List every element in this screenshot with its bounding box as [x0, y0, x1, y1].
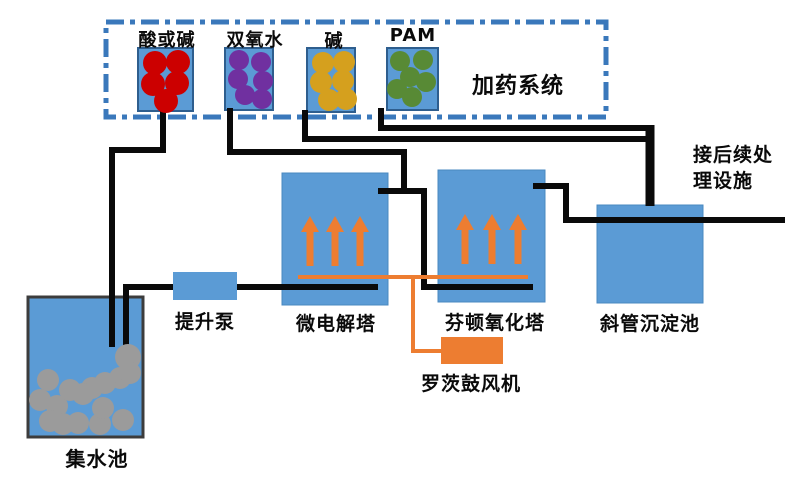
label-acid-or-alkali: 酸或碱 [139, 26, 196, 52]
label-dosing-system: 加药系统 [472, 68, 564, 100]
label-roots-blower: 罗茨鼓风机 [421, 369, 521, 396]
process-tanks [28, 170, 703, 437]
lift-pump-body [173, 272, 237, 300]
label-micro-electrolysis-tower: 微电解塔 [296, 309, 376, 336]
label-alkali: 碱 [325, 27, 344, 53]
diagram-canvas [0, 0, 800, 482]
label-pam: PAM [390, 25, 436, 46]
label-inclined-tube-settler: 斜管沉淀池 [600, 309, 700, 336]
note-to-subsequent-treatment: 接后续处理设施 [693, 143, 779, 194]
label-hydrogen-peroxide: 双氧水 [227, 26, 284, 52]
label-lift-pump: 提升泵 [175, 307, 235, 334]
label-fenton-oxidation-tower: 芬顿氧化塔 [445, 308, 545, 335]
pipe-alkali-to-settler [305, 110, 650, 139]
roots-blower-box [441, 337, 503, 364]
process-flow-diagram: 酸或碱 双氧水 碱 PAM 加药系统 提升泵 微电解塔 芬顿氧化塔 斜管沉淀池 … [0, 0, 800, 482]
label-collection-tank: 集水池 [66, 443, 129, 472]
air-up-arrows [301, 214, 527, 266]
